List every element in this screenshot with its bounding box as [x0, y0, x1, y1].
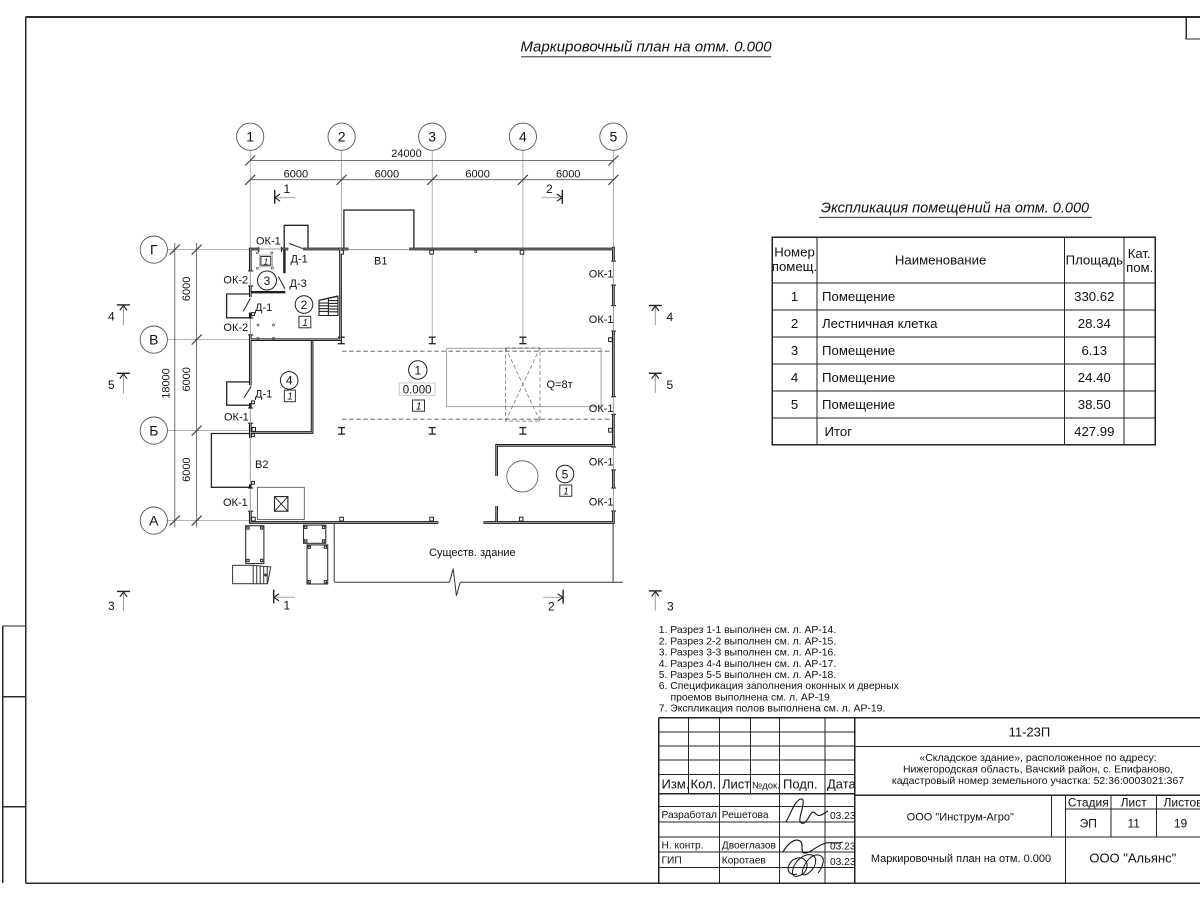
svg-text:6000: 6000 [181, 367, 193, 391]
svg-text:7. Экспликация полов выполнена: 7. Экспликация полов выполнена см. л. АР… [659, 704, 886, 715]
svg-text:Помещение: Помещение [822, 289, 895, 304]
svg-text:ОК-1: ОК-1 [589, 403, 614, 415]
svg-text:Помещение: Помещение [822, 370, 895, 385]
svg-text:А: А [149, 512, 159, 528]
svg-text:38.50: 38.50 [1078, 397, 1111, 412]
svg-text:4: 4 [108, 310, 115, 324]
svg-text:ООО "Инструм-Агро": ООО "Инструм-Агро" [907, 811, 1014, 823]
svg-text:Площадь: Площадь [1066, 252, 1124, 267]
svg-text:ОК-2: ОК-2 [223, 322, 248, 334]
svg-text:ОК-1: ОК-1 [256, 236, 281, 248]
svg-text:ОК-1: ОК-1 [224, 412, 249, 424]
svg-text:Дата: Дата [827, 777, 857, 792]
svg-text:4: 4 [519, 129, 527, 145]
svg-text:Лист: Лист [1121, 796, 1148, 810]
svg-text:2: 2 [548, 600, 555, 614]
svg-text:28.34: 28.34 [1078, 316, 1111, 331]
svg-text:1: 1 [563, 486, 569, 497]
svg-text:3. Разрез 3-3 выполнен см. л.: 3. Разрез 3-3 выполнен см. л. АР-16. [659, 648, 837, 659]
svg-text:В1: В1 [374, 255, 387, 267]
svg-text:Наименование: Наименование [895, 252, 986, 267]
svg-text:330.62: 330.62 [1074, 289, 1114, 304]
svg-text:проемов выполнена см. л. АР-19: проемов выполнена см. л. АР-19 [671, 692, 830, 703]
svg-text:2: 2 [546, 182, 553, 196]
svg-text:6000: 6000 [181, 457, 193, 481]
svg-text:Маркировочный план на отм. 0.0: Маркировочный план на отм. 0.000 [871, 853, 1051, 865]
svg-text:пом.: пом. [1126, 260, 1153, 275]
svg-text:Г: Г [150, 242, 158, 258]
svg-text:ОК-1: ОК-1 [589, 269, 614, 281]
svg-text:3: 3 [667, 600, 674, 614]
svg-text:Решетова: Решетова [722, 810, 769, 821]
svg-text:3: 3 [264, 274, 271, 288]
svg-text:Подп.: Подп. [783, 777, 818, 792]
svg-text:0.000: 0.000 [403, 384, 432, 396]
svg-text:ЭП: ЭП [1080, 816, 1097, 830]
svg-text:Д-1: Д-1 [255, 389, 272, 401]
svg-text:1: 1 [284, 599, 291, 613]
svg-text:1: 1 [414, 363, 421, 377]
svg-text:ОК-1: ОК-1 [589, 497, 614, 509]
svg-text:4: 4 [286, 374, 293, 388]
svg-text:427.99: 427.99 [1074, 424, 1114, 439]
svg-text:Коротаев: Коротаев [722, 856, 766, 867]
svg-text:Н. контр.: Н. контр. [662, 840, 704, 851]
svg-text:18000: 18000 [161, 368, 173, 399]
svg-text:5: 5 [562, 467, 569, 481]
svg-text:2: 2 [301, 298, 308, 312]
svg-text:1. Разрез 1-1 выполнен см. л.: 1. Разрез 1-1 выполнен см. л. АР-14. [659, 625, 837, 636]
svg-text:6000: 6000 [284, 168, 308, 180]
svg-text:Маркировочный план на отм. 0.0: Маркировочный план на отм. 0.000 [520, 39, 772, 56]
svg-text:Лестничная клетка: Лестничная клетка [822, 316, 938, 331]
svg-text:6000: 6000 [556, 168, 580, 180]
svg-text:Д-1: Д-1 [291, 254, 308, 266]
svg-text:2. Разрез 2-2 выполнен см. л.: 2. Разрез 2-2 выполнен см. л. АР-15. [659, 636, 837, 647]
svg-text:3: 3 [791, 343, 798, 358]
svg-text:Итог: Итог [825, 424, 853, 439]
svg-text:ОК-2: ОК-2 [223, 275, 248, 287]
svg-text:помещ.: помещ. [772, 259, 817, 274]
svg-text:1: 1 [264, 256, 269, 266]
svg-text:Д-1: Д-1 [255, 302, 272, 314]
svg-text:Двоеглазов: Двоеглазов [722, 840, 776, 851]
svg-text:4: 4 [667, 310, 674, 324]
svg-text:19: 19 [1174, 816, 1188, 830]
svg-text:5: 5 [791, 397, 798, 412]
svg-text:Листов: Листов [1164, 796, 1200, 810]
svg-text:2: 2 [338, 129, 346, 145]
svg-text:Кол.: Кол. [691, 777, 717, 792]
svg-text:03.23: 03.23 [830, 811, 856, 822]
svg-text:1: 1 [284, 182, 291, 196]
svg-text:Помещение: Помещение [822, 343, 895, 358]
svg-text:Разработал: Разработал [662, 809, 718, 821]
svg-text:В2: В2 [255, 459, 268, 471]
svg-text:24.40: 24.40 [1078, 370, 1111, 385]
svg-text:Лист: Лист [722, 777, 750, 792]
svg-text:ОК-1: ОК-1 [589, 456, 614, 468]
svg-text:5: 5 [667, 378, 674, 392]
svg-text:Стадия: Стадия [1068, 796, 1109, 810]
svg-text:Кат.: Кат. [1128, 246, 1151, 261]
svg-text:1: 1 [302, 318, 308, 329]
svg-text:№док.: №док. [752, 781, 780, 792]
svg-text:2: 2 [791, 316, 798, 331]
svg-text:ОК-1: ОК-1 [223, 497, 248, 509]
svg-text:ГИП: ГИП [662, 856, 682, 867]
svg-text:1: 1 [246, 129, 254, 145]
svg-text:Существ. здание: Существ. здание [429, 547, 516, 559]
svg-text:4: 4 [791, 370, 798, 385]
svg-text:11-23П: 11-23П [1009, 725, 1051, 740]
svg-text:1: 1 [791, 289, 798, 304]
svg-text:6000: 6000 [181, 277, 193, 301]
svg-text:Экспликация помещений на отм.: Экспликация помещений на отм. 0.000 [821, 201, 1089, 217]
svg-text:ООО "Альянс": ООО "Альянс" [1089, 850, 1176, 865]
svg-text:6000: 6000 [465, 168, 489, 180]
svg-text:1: 1 [287, 392, 293, 403]
svg-text:5. Разрез 5-5 выполнен см. л.: 5. Разрез 5-5 выполнен см. л. АР-18. [659, 670, 837, 681]
svg-text:Изм.: Изм. [662, 777, 690, 792]
svg-text:кадастровый номер земельного у: кадастровый номер земельного участка: 52… [892, 775, 1184, 787]
svg-text:«Складское здание», расположен: «Складское здание», расположенное по адр… [919, 752, 1156, 764]
svg-text:5: 5 [610, 129, 618, 145]
svg-text:3: 3 [108, 599, 115, 613]
svg-text:6. Спецификация заполнения око: 6. Спецификация заполнения оконных и две… [659, 680, 900, 692]
svg-text:Q=8т: Q=8т [547, 379, 573, 391]
svg-text:4. Разрез 4-4 выполнен см. л.: 4. Разрез 4-4 выполнен см. л. АР-17. [659, 659, 837, 670]
svg-text:Д-3: Д-3 [290, 278, 307, 290]
svg-text:11: 11 [1127, 816, 1140, 830]
svg-text:Нижегородская область, Вачский: Нижегородская область, Вачский район, с.… [903, 764, 1173, 776]
svg-text:03.23: 03.23 [830, 857, 856, 868]
svg-text:1: 1 [416, 401, 422, 412]
svg-text:Номер: Номер [774, 245, 815, 260]
svg-text:6.13: 6.13 [1081, 343, 1107, 358]
svg-text:Б: Б [149, 422, 158, 438]
svg-text:ОК-1: ОК-1 [589, 314, 614, 326]
svg-text:Помещение: Помещение [822, 397, 895, 412]
svg-text:5: 5 [108, 378, 115, 392]
svg-text:24000: 24000 [391, 148, 422, 160]
svg-text:В: В [149, 331, 158, 347]
svg-text:3: 3 [428, 129, 436, 145]
svg-text:6000: 6000 [375, 168, 399, 180]
